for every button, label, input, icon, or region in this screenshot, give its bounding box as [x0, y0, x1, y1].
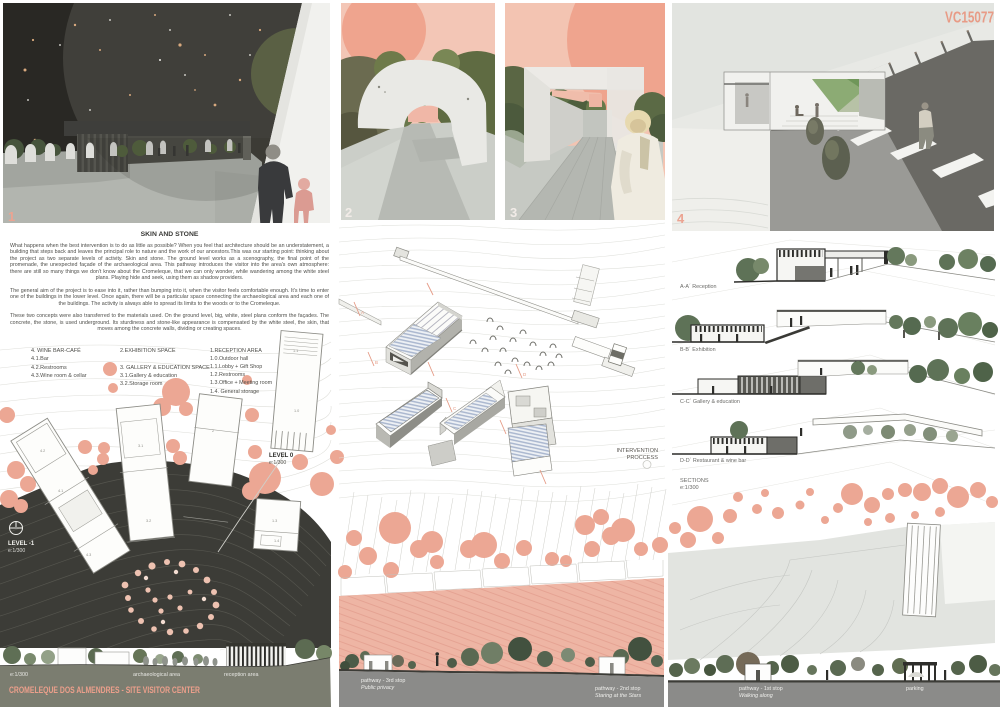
svg-text:D-D´ Restaurant & wine bar: D-D´ Restaurant & wine bar [680, 458, 746, 464]
svg-text:SECTIONS: SECTIONS [680, 478, 709, 484]
svg-text:VC15077: VC15077 [945, 10, 994, 27]
svg-text:parking: parking [906, 686, 924, 692]
svg-text:e:1/300: e:1/300 [8, 548, 25, 554]
svg-text:C: C [453, 406, 457, 411]
svg-text:3: 3 [510, 205, 517, 220]
svg-text:Staring at the Stars: Staring at the Stars [595, 693, 641, 699]
svg-text:LEVEL 0: LEVEL 0 [269, 453, 294, 459]
svg-text:4: 4 [677, 211, 685, 226]
svg-text:A-A´ Reception: A-A´ Reception [680, 284, 717, 290]
svg-text:reception area: reception area [224, 672, 258, 678]
svg-text:2: 2 [212, 429, 214, 433]
svg-text:archaeological area: archaeological area [133, 672, 180, 678]
svg-text:4.1: 4.1 [58, 489, 63, 493]
svg-text:pathway - 3rd stop: pathway - 3rd stop [361, 678, 405, 684]
svg-text:pathway - 2nd stop: pathway - 2nd stop [595, 686, 641, 692]
svg-text:4.3: 4.3 [86, 553, 91, 557]
svg-text:INTERVENTION: INTERVENTION [616, 448, 658, 454]
svg-text:D: D [523, 372, 527, 377]
svg-text:2: 2 [345, 205, 352, 220]
svg-text:C-C´ Gallery & education: C-C´ Gallery & education [680, 399, 740, 405]
svg-text:e:1/300: e:1/300 [269, 460, 286, 466]
svg-text:CROMELEQUE DOS ALMENDRES - SIT: CROMELEQUE DOS ALMENDRES - SITE VISITOR … [9, 685, 200, 696]
svg-text:1.4: 1.4 [274, 539, 279, 543]
svg-text:A: A [361, 310, 364, 315]
svg-text:3.1: 3.1 [138, 444, 143, 448]
svg-text:Public privacy: Public privacy [361, 685, 395, 691]
svg-text:B-B´ Exhibition: B-B´ Exhibition [680, 347, 716, 353]
svg-text:PROCCESS: PROCCESS [627, 455, 659, 461]
svg-text:Walking along: Walking along [739, 693, 773, 699]
svg-text:e:1/300: e:1/300 [10, 672, 28, 678]
svg-text:B: B [375, 360, 378, 365]
svg-text:3.2: 3.2 [146, 519, 151, 523]
svg-text:1.0: 1.0 [294, 409, 299, 413]
svg-text:LEVEL -1: LEVEL -1 [8, 541, 35, 547]
svg-text:4.2: 4.2 [40, 449, 45, 453]
svg-text:e:1/300: e:1/300 [680, 485, 699, 491]
svg-text:1.1: 1.1 [293, 349, 298, 353]
svg-text:1.3: 1.3 [272, 519, 277, 523]
svg-text:1: 1 [8, 209, 15, 224]
svg-text:pathway - 1st stop: pathway - 1st stop [739, 686, 783, 692]
